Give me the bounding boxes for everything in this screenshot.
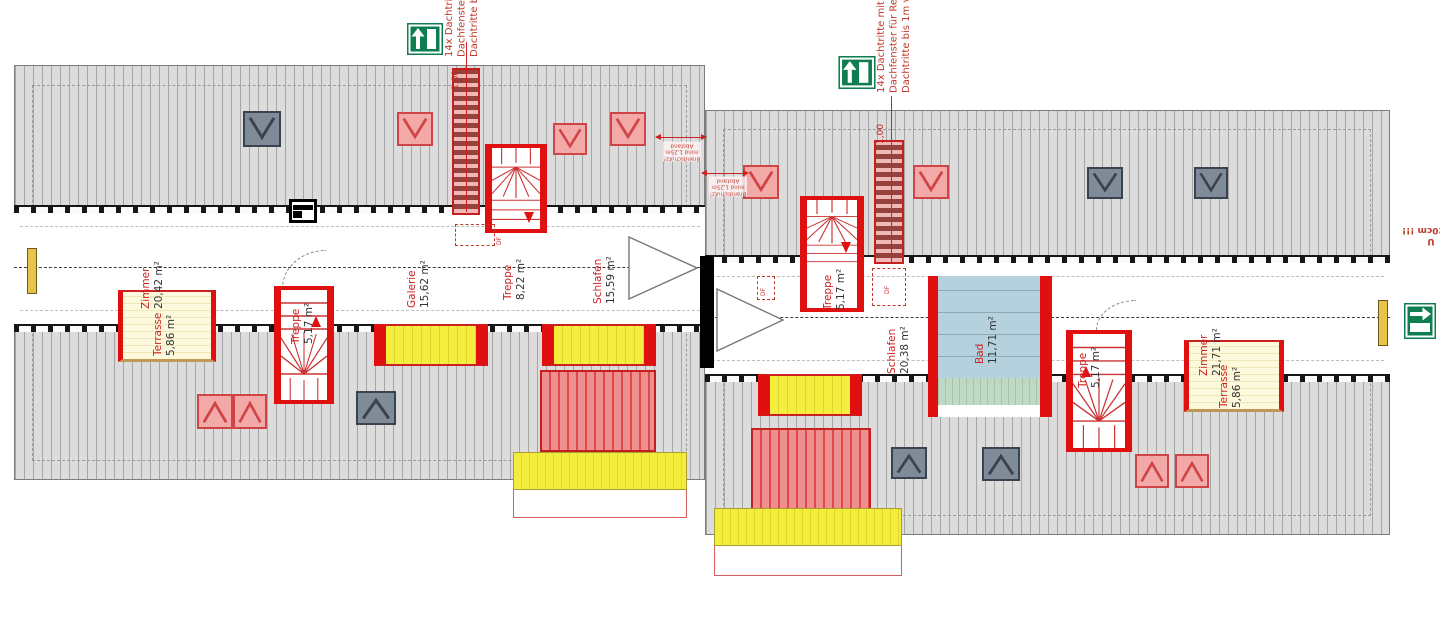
note-line: mind 1,25m — [709, 184, 747, 191]
edge-note: U x 120cm !!! — [1396, 224, 1440, 246]
stair-upper-left — [485, 144, 547, 233]
note-line: 14x Dachtritte — [444, 0, 457, 57]
room-area: 15,59 m² — [605, 232, 618, 304]
dimension-label: 1,00 — [451, 56, 461, 90]
skylight-dark-icon — [356, 391, 396, 425]
room-area: 5,17 m² — [1090, 334, 1103, 388]
dormer-window-yellow — [758, 374, 862, 416]
skylight-dark-icon — [243, 111, 281, 147]
skylight-dark-icon — [891, 447, 927, 479]
room-name: Terrasse — [152, 300, 165, 356]
room-area: 5,17 m² — [303, 292, 316, 344]
chimney-icon — [289, 199, 317, 223]
room-label-schlafen: Schlafen 20,38 m² — [886, 296, 912, 374]
fire-note-a: Brandschutz! mind 1,25m Abstand — [663, 142, 701, 162]
room-label-zimmer: Zimmer 20,42 m² — [140, 237, 166, 309]
room-label-schlafen: Schlafen 15,59 m² — [592, 232, 618, 304]
note-line: Brandschutz! — [709, 190, 747, 197]
note-line: U — [1396, 235, 1440, 246]
dimension-line — [466, 42, 467, 212]
room-area: 8,22 m² — [515, 238, 528, 300]
dimension-label: 1,00 — [876, 110, 886, 144]
floorplan-canvas: Zimmer 20,42 m² Terrasse 5,86 m² Treppe … — [0, 0, 1440, 617]
skylight-rescue-icon — [913, 165, 949, 199]
fire-note-b: Brandschutz! mind 1,25m Abstand — [709, 177, 747, 197]
roof-hatch-shaft-right — [874, 140, 904, 264]
room-name: Treppe — [502, 238, 515, 300]
room-name: Schlafen — [592, 232, 605, 304]
stair-direction-arrow — [841, 242, 851, 253]
note-line: Dachfenster für Rettun — [889, 0, 902, 93]
room-label-treppe-8: Treppe 8,22 m² — [502, 238, 528, 300]
df-marker-box — [455, 224, 495, 246]
roof-note-middle: 14x Dachtritte mit Han Dachfenster für R… — [876, 0, 914, 93]
note-line: Dachtritte bis — [469, 0, 482, 57]
exit-sign-icon — [838, 56, 876, 89]
dormer-window-yellow — [374, 324, 488, 366]
room-name: Treppe — [290, 292, 303, 344]
room-name: Zimmer — [140, 237, 153, 309]
skylight-dark-icon — [982, 447, 1020, 481]
room-area: 15,62 m² — [419, 238, 432, 308]
dormer-window-yellow — [542, 324, 656, 366]
balcony-strip-yellow — [714, 508, 902, 546]
room-area: 20,42 m² — [153, 237, 166, 309]
room-name: Bad — [974, 298, 987, 364]
note-line: mind 1,25m — [663, 149, 701, 156]
room-name: Treppe — [822, 262, 835, 310]
skylight-rescue-icon — [553, 123, 587, 155]
room-label-treppe: Treppe 5,17 m² — [1077, 334, 1103, 388]
skylight-rescue-icon — [197, 394, 233, 429]
room-area: 5,17 m² — [835, 262, 848, 310]
note-line: 14x Dachtritte mit Han — [876, 0, 889, 93]
room-name: Schlafen — [886, 296, 899, 374]
roof-note-left: 14x Dachtritte Dachfenster fü Dachtritte… — [444, 0, 482, 57]
room-name: Terrasse — [1218, 350, 1231, 408]
skylight-dark-icon — [1194, 167, 1228, 199]
room-label-treppe: Treppe 5,17 m² — [822, 262, 848, 310]
skylight-rescue-icon — [610, 112, 646, 146]
window-marker-right — [1378, 300, 1388, 346]
room-name: Zimmer — [1198, 296, 1211, 376]
exit-sign-icon — [1402, 303, 1438, 339]
balcony-strip-yellow — [513, 452, 687, 490]
distance-arrow — [702, 173, 748, 174]
room-label-galerie: Galerie 15,62 m² — [406, 238, 432, 308]
dimension-line — [891, 96, 892, 262]
dormer-roof-red — [751, 428, 871, 510]
distance-arrow — [656, 137, 706, 138]
room-label-terrasse: Terrasse 5,86 m² — [1218, 350, 1244, 408]
skylight-rescue-icon — [1175, 454, 1209, 488]
window-marker-left — [27, 248, 37, 294]
room-label-bad: Bad 11,71 m² — [974, 298, 1000, 364]
df-label: DF — [760, 278, 767, 296]
room-label-treppe: Treppe 5,17 m² — [290, 292, 316, 344]
room-area: 11,71 m² — [987, 298, 1000, 364]
skylight-rescue-icon — [1135, 454, 1169, 488]
knee-wall-left-top — [14, 205, 705, 213]
room-area: 5,86 m² — [1231, 350, 1244, 408]
skylight-rescue-icon — [233, 394, 267, 429]
bathroom-floor-white — [938, 405, 1040, 417]
party-wall — [700, 256, 714, 368]
stair-direction-arrow — [524, 212, 534, 223]
df-label: DF — [496, 225, 503, 245]
bathroom-floor-green — [938, 378, 1040, 405]
note-line: Dachfenster fü — [457, 0, 470, 57]
room-label-terrasse: Terrasse 5,86 m² — [152, 300, 178, 356]
note-line: Brandschutz! — [663, 155, 701, 162]
skylight-dark-icon — [1087, 167, 1123, 199]
eaves-dash-left-top — [20, 226, 700, 227]
df-label: DF — [884, 274, 891, 294]
gable-roof-lines — [628, 236, 698, 300]
room-area: 20,38 m² — [899, 296, 912, 374]
room-name: Galerie — [406, 238, 419, 308]
note-line: Dachtritte bis 1m vor D — [901, 0, 914, 93]
note-line: x 120cm !!! — [1396, 224, 1440, 235]
room-name: Treppe — [1077, 334, 1090, 388]
exit-sign-icon — [406, 23, 444, 55]
room-area: 5,86 m² — [165, 300, 178, 356]
skylight-rescue-icon — [397, 112, 433, 146]
dormer-roof-red — [540, 370, 656, 452]
